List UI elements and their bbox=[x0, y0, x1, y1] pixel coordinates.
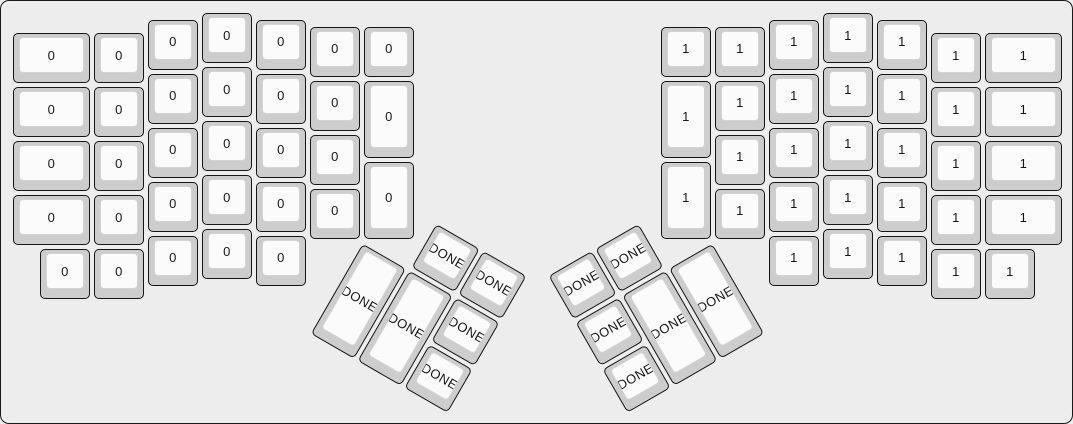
keycap-face: 1 bbox=[775, 78, 813, 114]
keycap[interactable]: 1 bbox=[823, 121, 873, 171]
keycap-face: 1 bbox=[775, 186, 813, 222]
keycap[interactable]: 1 bbox=[931, 33, 981, 83]
keycap-face: 0 bbox=[154, 132, 192, 168]
keycap-face: 0 bbox=[316, 31, 354, 67]
keycap[interactable]: 0 bbox=[13, 87, 90, 137]
keycap[interactable]: 1 bbox=[715, 135, 765, 185]
keycap-face: 1 bbox=[937, 199, 975, 235]
keycap-face: 0 bbox=[316, 85, 354, 121]
keycap[interactable]: 1 bbox=[769, 128, 819, 178]
keycap[interactable]: 0 bbox=[202, 121, 252, 171]
keycap[interactable]: 0 bbox=[256, 182, 306, 232]
keycap[interactable]: 0 bbox=[364, 81, 414, 158]
keycap[interactable]: 1 bbox=[985, 141, 1062, 191]
keycap-face: 1 bbox=[775, 24, 813, 60]
keycap-legend: 1 bbox=[682, 190, 690, 205]
keycap[interactable]: 1 bbox=[931, 141, 981, 191]
keycap[interactable]: 1 bbox=[931, 195, 981, 245]
keycap-legend: 1 bbox=[790, 142, 798, 157]
keycap-face: 1 bbox=[721, 139, 759, 175]
keycap-face: 1 bbox=[883, 78, 921, 114]
keycap[interactable]: 0 bbox=[364, 27, 414, 77]
keycap[interactable]: 0 bbox=[310, 81, 360, 131]
keycap-face: 0 bbox=[370, 31, 408, 67]
keycap-face: 1 bbox=[775, 240, 813, 276]
keycap-legend: 0 bbox=[48, 210, 56, 225]
keycap-legend: 1 bbox=[736, 95, 744, 110]
keycap-legend: 0 bbox=[385, 41, 393, 56]
keycap[interactable]: 0 bbox=[256, 236, 306, 286]
keycap-legend: 0 bbox=[61, 264, 69, 279]
keycap[interactable]: 1 bbox=[769, 182, 819, 232]
keycap-face: 0 bbox=[100, 145, 138, 181]
keycap[interactable]: 0 bbox=[310, 189, 360, 239]
keycap-face: 0 bbox=[370, 85, 408, 148]
keycap[interactable]: 0 bbox=[94, 87, 144, 137]
keycap[interactable]: 0 bbox=[148, 128, 198, 178]
keycap-face: 0 bbox=[100, 253, 138, 289]
keycap-face: 0 bbox=[154, 186, 192, 222]
keycap[interactable]: 0 bbox=[202, 229, 252, 279]
keycap-legend: 0 bbox=[331, 41, 339, 56]
keycap[interactable]: 0 bbox=[94, 249, 144, 299]
keycap-legend: 0 bbox=[169, 142, 177, 157]
keycap[interactable]: 1 bbox=[931, 87, 981, 137]
keycap-face: 0 bbox=[262, 240, 300, 276]
keycap-face: 1 bbox=[991, 91, 1056, 127]
keycap[interactable]: 0 bbox=[94, 141, 144, 191]
keycap-legend: 0 bbox=[115, 264, 123, 279]
keycap[interactable]: 0 bbox=[13, 141, 90, 191]
keycap-face: 0 bbox=[370, 166, 408, 229]
keycap-legend: DONE bbox=[560, 266, 602, 299]
keycap[interactable]: 0 bbox=[256, 20, 306, 70]
keycap-legend: 0 bbox=[223, 82, 231, 97]
keycap-face: 1 bbox=[829, 179, 867, 215]
keycap[interactable]: 0 bbox=[13, 33, 90, 83]
keycap-face: 0 bbox=[154, 240, 192, 276]
keycap-legend: 1 bbox=[898, 196, 906, 211]
keycap-face: 0 bbox=[100, 91, 138, 127]
keycap[interactable]: 0 bbox=[13, 195, 90, 245]
keycap[interactable]: 1 bbox=[877, 182, 927, 232]
keycap[interactable]: 0 bbox=[202, 175, 252, 225]
keyboard-canvas: 0000000000000000000000000000000011111111… bbox=[0, 0, 1073, 424]
keycap-legend: DONE bbox=[386, 309, 428, 342]
keycap-legend: 0 bbox=[223, 28, 231, 43]
keycap-legend: 0 bbox=[115, 210, 123, 225]
keycap[interactable]: 1 bbox=[715, 81, 765, 131]
keycap-face: 1 bbox=[721, 85, 759, 121]
keycap-legend: 1 bbox=[790, 196, 798, 211]
keycap-legend: 1 bbox=[952, 156, 960, 171]
keycap[interactable]: 1 bbox=[769, 236, 819, 286]
keycap-face: 1 bbox=[991, 37, 1056, 73]
keycap[interactable]: 0 bbox=[148, 74, 198, 124]
keycap-face: 1 bbox=[937, 145, 975, 181]
keycap-legend: 1 bbox=[1006, 264, 1014, 279]
keycap-legend: 1 bbox=[736, 203, 744, 218]
keycap[interactable]: 0 bbox=[94, 33, 144, 83]
keycap-legend: 0 bbox=[169, 196, 177, 211]
keycap-legend: 0 bbox=[115, 156, 123, 171]
keycap-legend: DONE bbox=[607, 239, 649, 272]
keycap[interactable]: 1 bbox=[661, 162, 711, 239]
keycap-face: DONE bbox=[414, 350, 465, 400]
keycap-face: DONE bbox=[610, 350, 661, 400]
keycap-legend: DONE bbox=[419, 359, 461, 392]
keycap-legend: 1 bbox=[790, 250, 798, 265]
keycap[interactable]: 1 bbox=[985, 33, 1062, 83]
keycap[interactable]: 1 bbox=[769, 20, 819, 70]
keycap[interactable]: 1 bbox=[715, 27, 765, 77]
keycap-face: 0 bbox=[19, 91, 84, 127]
keycap-face: 0 bbox=[262, 132, 300, 168]
keycap-face: 1 bbox=[721, 193, 759, 229]
keycap[interactable]: 0 bbox=[40, 249, 90, 299]
keycap-legend: 0 bbox=[223, 136, 231, 151]
keycap-face: 1 bbox=[667, 166, 705, 229]
keycap-legend: 0 bbox=[169, 250, 177, 265]
keycap[interactable]: 0 bbox=[256, 128, 306, 178]
keycap-face: 1 bbox=[991, 253, 1029, 289]
keycap[interactable]: 1 bbox=[985, 195, 1062, 245]
keycap-legend: 1 bbox=[682, 41, 690, 56]
keycap-face: 1 bbox=[883, 132, 921, 168]
keycap-legend: 1 bbox=[736, 41, 744, 56]
keycap-face: 0 bbox=[208, 71, 246, 107]
keycap[interactable]: 0 bbox=[94, 195, 144, 245]
keycap[interactable]: 1 bbox=[931, 249, 981, 299]
keycap-face: 0 bbox=[208, 233, 246, 269]
keycap-face: 1 bbox=[937, 91, 975, 127]
keycap[interactable]: 1 bbox=[877, 236, 927, 286]
keycap-face: DONE bbox=[468, 257, 519, 307]
keycap-face: 0 bbox=[316, 139, 354, 175]
keycap-legend: DONE bbox=[647, 309, 689, 342]
keycap-face: 0 bbox=[208, 125, 246, 161]
keycap-legend: 0 bbox=[48, 102, 56, 117]
keycap-legend: 0 bbox=[169, 88, 177, 103]
keycap-legend: 0 bbox=[115, 102, 123, 117]
keycap-legend: DONE bbox=[426, 239, 468, 272]
keycap-legend: 1 bbox=[952, 210, 960, 225]
keycap-face: 0 bbox=[262, 78, 300, 114]
keycap-legend: 1 bbox=[898, 88, 906, 103]
keycap-legend: 1 bbox=[1020, 156, 1028, 171]
keycap[interactable]: 1 bbox=[877, 20, 927, 70]
keycap-face: 0 bbox=[262, 186, 300, 222]
keycap-legend: DONE bbox=[587, 312, 629, 345]
keycap[interactable]: 1 bbox=[661, 27, 711, 77]
keycap-legend: 0 bbox=[223, 244, 231, 259]
keycap-legend: 0 bbox=[331, 95, 339, 110]
keycap-legend: 0 bbox=[277, 250, 285, 265]
keycap-face: 0 bbox=[46, 253, 84, 289]
keycap-face: 1 bbox=[667, 85, 705, 148]
keycap-legend: 1 bbox=[844, 190, 852, 205]
keycap-legend: 1 bbox=[1020, 102, 1028, 117]
keycap-face: 0 bbox=[19, 199, 84, 235]
keycap-legend: 0 bbox=[223, 190, 231, 205]
keycap-face: 0 bbox=[154, 78, 192, 114]
keycap-legend: 0 bbox=[169, 34, 177, 49]
keycap-face: 0 bbox=[208, 179, 246, 215]
keycap[interactable]: 0 bbox=[148, 182, 198, 232]
keycap-face: 0 bbox=[316, 193, 354, 229]
keycap-legend: 0 bbox=[385, 109, 393, 124]
keycap-face: 0 bbox=[19, 37, 84, 73]
keycap-face: 0 bbox=[262, 24, 300, 60]
keycap-face: 1 bbox=[829, 125, 867, 161]
keycap[interactable]: 0 bbox=[148, 20, 198, 70]
keycap[interactable]: 1 bbox=[823, 13, 873, 63]
keycap-legend: 0 bbox=[115, 48, 123, 63]
keycap[interactable]: 1 bbox=[985, 87, 1062, 137]
keycap[interactable]: 0 bbox=[310, 27, 360, 77]
keycap-legend: 0 bbox=[331, 203, 339, 218]
keyboard: 0000000000000000000000000000000011111111… bbox=[1, 1, 1072, 423]
keycap-legend: DONE bbox=[446, 312, 488, 345]
keycap[interactable]: 0 bbox=[202, 67, 252, 117]
keycap-legend: DONE bbox=[339, 282, 381, 315]
keycap-face: 1 bbox=[991, 199, 1056, 235]
keycap[interactable]: 0 bbox=[202, 13, 252, 63]
keycap[interactable]: 1 bbox=[877, 74, 927, 124]
keycap-legend: 0 bbox=[277, 142, 285, 157]
keycap[interactable]: 1 bbox=[823, 175, 873, 225]
keycap-legend: 1 bbox=[790, 34, 798, 49]
keycap-legend: 1 bbox=[682, 109, 690, 124]
keycap-legend: 1 bbox=[898, 250, 906, 265]
keycap-legend: 1 bbox=[790, 88, 798, 103]
keycap-legend: 0 bbox=[331, 149, 339, 164]
keycap-face: 1 bbox=[829, 17, 867, 53]
keycap-legend: 1 bbox=[736, 149, 744, 164]
keycap-legend: 1 bbox=[1020, 210, 1028, 225]
keycap-legend: 1 bbox=[844, 28, 852, 43]
keycap-legend: 1 bbox=[898, 34, 906, 49]
keycap-legend: 1 bbox=[844, 136, 852, 151]
keycap[interactable]: 1 bbox=[823, 229, 873, 279]
keycap[interactable]: 1 bbox=[823, 67, 873, 117]
keycap-face: 1 bbox=[775, 132, 813, 168]
keycap-face: DONE bbox=[583, 304, 634, 354]
keycap-legend: 0 bbox=[48, 156, 56, 171]
keycap-legend: DONE bbox=[694, 282, 736, 315]
keycap[interactable]: 0 bbox=[148, 236, 198, 286]
keycap-face: 1 bbox=[829, 71, 867, 107]
keycap[interactable]: 1 bbox=[985, 249, 1035, 299]
keycap-face: DONE bbox=[441, 304, 492, 354]
keycap[interactable]: 1 bbox=[877, 128, 927, 178]
keycap-face: 1 bbox=[937, 253, 975, 289]
keycap-legend: 1 bbox=[844, 82, 852, 97]
keycap-legend: 0 bbox=[277, 34, 285, 49]
keycap-legend: DONE bbox=[473, 266, 515, 299]
keycap-face: 0 bbox=[19, 145, 84, 181]
keycap-legend: 1 bbox=[1020, 48, 1028, 63]
keycap-legend: 0 bbox=[48, 48, 56, 63]
keycap-face: 1 bbox=[883, 186, 921, 222]
keycap-face: 1 bbox=[883, 24, 921, 60]
keycap-face: DONE bbox=[422, 230, 473, 280]
keycap[interactable]: 1 bbox=[769, 74, 819, 124]
keycap-legend: 1 bbox=[952, 48, 960, 63]
keycap[interactable]: 1 bbox=[715, 189, 765, 239]
keycap-face: 0 bbox=[100, 37, 138, 73]
keycap[interactable]: 1 bbox=[661, 81, 711, 158]
keycap-face: 1 bbox=[883, 240, 921, 276]
keycap-face: DONE bbox=[556, 257, 607, 307]
keycap[interactable]: 0 bbox=[256, 74, 306, 124]
keycap-face: 0 bbox=[154, 24, 192, 60]
keycap-face: 1 bbox=[829, 233, 867, 269]
keycap-face: 1 bbox=[667, 31, 705, 67]
keycap-face: DONE bbox=[602, 230, 653, 280]
keycap-legend: 0 bbox=[385, 190, 393, 205]
keycap-legend: 1 bbox=[952, 102, 960, 117]
keycap[interactable]: 0 bbox=[310, 135, 360, 185]
keycap-legend: 1 bbox=[952, 264, 960, 279]
keycap-face: 0 bbox=[100, 199, 138, 235]
keycap-legend: 1 bbox=[898, 142, 906, 157]
keycap-legend: 0 bbox=[277, 196, 285, 211]
keycap-legend: 1 bbox=[844, 244, 852, 259]
keycap-face: 1 bbox=[721, 31, 759, 67]
keycap[interactable]: 0 bbox=[364, 162, 414, 239]
keycap-legend: 0 bbox=[277, 88, 285, 103]
keycap-face: 1 bbox=[937, 37, 975, 73]
keycap-face: 0 bbox=[208, 17, 246, 53]
keycap-face: 1 bbox=[991, 145, 1056, 181]
keycap-legend: DONE bbox=[614, 359, 656, 392]
